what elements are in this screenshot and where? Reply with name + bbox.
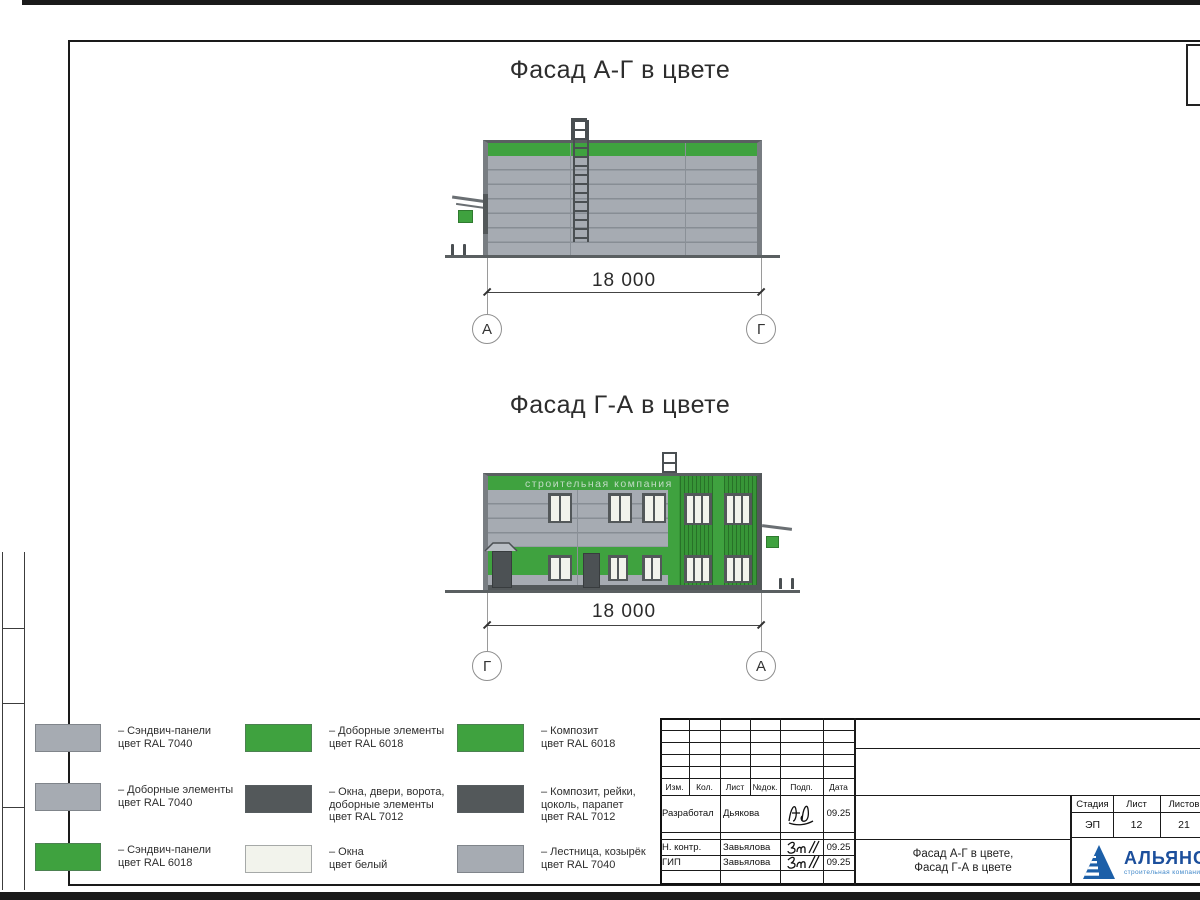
stamp-name: Завьялова: [723, 840, 779, 855]
legend-swatch: [35, 724, 101, 752]
axis-label: А: [482, 321, 492, 338]
legend-item: – Композит цвет RAL 6018: [457, 724, 615, 752]
composite-strip: [713, 476, 724, 585]
legend-label: – Доборные элементы цвет RAL 6018: [329, 724, 444, 750]
legend-item: – Доборные элементы цвет RAL 7040: [35, 783, 233, 811]
stamp-line: [1070, 812, 1200, 813]
legend-item: – Окна цвет белый: [245, 845, 387, 873]
drawing-sheet: Фасад А-Г в цвете 18 000 А Г Фасад Г-А в…: [0, 0, 1200, 900]
sheet-label: Лист: [1113, 797, 1160, 812]
company-tagline: строительная компания: [1124, 869, 1200, 876]
stamp-line: [720, 718, 721, 885]
sandwich-panel-lines: [488, 156, 757, 255]
top-edge-bar: [22, 0, 1200, 5]
stamp-date: 09.25: [823, 855, 854, 870]
stamp-line: [780, 718, 781, 885]
roof-access-ladder: [573, 120, 589, 242]
bottom-edge-bar: [0, 892, 1200, 900]
stamp-line: [854, 718, 856, 885]
axis-bubble-left: А: [472, 314, 502, 344]
frame-left: [68, 40, 70, 886]
stamp-col-data: Дата: [823, 779, 854, 794]
company-logo-pyramid-icon: [1082, 843, 1116, 881]
bollard: [463, 244, 466, 255]
stamp-date: 09.25: [823, 840, 854, 855]
stage-value: ЭП: [1072, 816, 1113, 834]
margin-divider: [2, 703, 25, 704]
margin-divider: [2, 807, 25, 808]
green-utility-box: [766, 536, 779, 548]
window: [724, 555, 752, 583]
side-canopy: [762, 524, 792, 531]
margin-line-inner: [24, 552, 25, 890]
legend-item: – Композит, рейки, цоколь, парапет цвет …: [457, 785, 636, 824]
window: [684, 555, 712, 583]
extension-line: [761, 258, 762, 314]
sheets-label: Листов: [1160, 797, 1200, 812]
stamp-col-doc: №док.: [750, 779, 780, 794]
legend-item: – Сэндвич-панели цвет RAL 7040: [35, 724, 211, 752]
margin-divider: [2, 628, 25, 629]
legend-label: – Лестница, козырёк цвет RAL 7040: [541, 845, 646, 871]
axis-bubble-right: Г: [746, 314, 776, 344]
stamp-name: Завьялова: [723, 855, 779, 870]
green-utility-box: [458, 210, 473, 223]
legend-swatch: [457, 724, 524, 752]
sandwich-panel-lines: [488, 490, 668, 547]
wall-bracket: [483, 194, 488, 234]
signature-scribble: [784, 799, 820, 827]
legend-label: – Доборные элементы цвет RAL 7040: [118, 783, 233, 809]
legend-swatch: [35, 783, 101, 811]
frame-top: [68, 40, 1200, 42]
legend-label: – Сэндвич-панели цвет RAL 7040: [118, 724, 211, 750]
facade-a-g-drawing: 18 000 А Г: [440, 108, 830, 358]
company-watermark: строительная компания: [525, 478, 673, 490]
sheets-total: 21: [1160, 816, 1200, 834]
window: [642, 493, 666, 523]
stamp-line: [660, 766, 855, 767]
legend-swatch: [245, 845, 312, 873]
legend-swatch: [245, 785, 312, 813]
facade1-title: Фасад А-Г в цвете: [420, 56, 820, 85]
legend-label: – Окна цвет белый: [329, 845, 387, 871]
stamp-date: 09.25: [823, 806, 854, 821]
corner-stamp-box: [1186, 44, 1200, 106]
stamp-col-list: Лист: [720, 779, 750, 794]
window: [684, 493, 712, 525]
legend-item: – Доборные элементы цвет RAL 6018: [245, 724, 444, 752]
axis-label: Г: [483, 658, 491, 675]
legend-swatch: [457, 845, 524, 873]
margin-line-outer: [2, 552, 3, 890]
bollard: [451, 244, 454, 255]
stamp-line: [660, 832, 855, 833]
green-parapet-band: [488, 143, 757, 156]
ground-line: [445, 255, 780, 258]
window: [642, 555, 662, 581]
axis-label: Г: [757, 321, 765, 338]
extension-line: [487, 258, 488, 314]
stamp-name: Дьякова: [723, 806, 779, 821]
stamp-line: [660, 870, 855, 871]
legend-item: – Окна, двери, ворота, доборные элементы…: [245, 785, 444, 824]
legend-item: – Сэндвич-панели цвет RAL 6018: [35, 843, 211, 871]
facade2-wall: [483, 473, 762, 592]
stamp-role: Разработал: [662, 806, 720, 821]
bollard: [791, 578, 794, 589]
stamp-role: ГИП: [662, 855, 720, 870]
stamp-line: [855, 748, 1200, 749]
signature-scribble: [785, 855, 821, 870]
stamp-line: [660, 730, 855, 731]
signature-scribble: [785, 840, 821, 855]
bollard: [779, 578, 782, 589]
axis-label: А: [756, 658, 766, 675]
legend-swatch: [245, 724, 312, 752]
facade2-dimension: 18 000: [544, 601, 704, 623]
axis-bubble-right: А: [746, 651, 776, 681]
stamp-col-podp: Подп.: [780, 779, 823, 794]
plinth-strip: [488, 575, 668, 585]
stage-label: Стадия: [1072, 797, 1113, 812]
panel-joint: [577, 490, 578, 585]
legend-label: – Композит, рейки, цоколь, парапет цвет …: [541, 785, 636, 824]
sheet-number: 12: [1113, 816, 1160, 834]
dimension-line: [487, 292, 761, 293]
stamp-line: [660, 795, 1200, 796]
roof-hatch-box: [662, 452, 677, 473]
panel-joint: [685, 143, 686, 255]
hatch-rail: [664, 462, 675, 464]
facade2-title: Фасад Г-А в цвете: [420, 391, 820, 420]
company-name: АЛЬЯНС: [1124, 848, 1200, 869]
stamp-role: Н. контр.: [662, 840, 720, 855]
panel-joint: [570, 143, 571, 255]
window: [608, 555, 628, 581]
entrance-door: [492, 551, 512, 588]
canopy-strut: [456, 203, 486, 209]
stamp-line: [660, 754, 855, 755]
facade1-dimension: 18 000: [544, 270, 704, 292]
window: [548, 555, 572, 581]
facade1-wall: [483, 140, 762, 258]
legend-swatch: [457, 785, 524, 813]
stamp-line: [1070, 837, 1200, 838]
stamp-line: [660, 742, 855, 743]
ground-line: [445, 590, 800, 593]
legend-label: – Сэндвич-панели цвет RAL 6018: [118, 843, 211, 869]
legend-swatch: [35, 843, 101, 871]
legend-label: – Композит цвет RAL 6018: [541, 724, 615, 750]
stamp-col-izm: Изм.: [660, 779, 689, 794]
stamp-line: [660, 839, 1070, 840]
window: [608, 493, 632, 523]
legend-item: – Лестница, козырёк цвет RAL 7040: [457, 845, 646, 873]
document-title: Фасад А-Г в цвете, Фасад Г-А в цвете: [858, 847, 1068, 875]
entrance-door: [583, 553, 600, 588]
dimension-line: [487, 625, 761, 626]
window: [724, 493, 752, 525]
composite-strip: [668, 476, 679, 585]
axis-bubble-left: Г: [472, 651, 502, 681]
legend-label: – Окна, двери, ворота, доборные элементы…: [329, 785, 444, 824]
stamp-col-kol: Кол.: [689, 779, 720, 794]
window: [548, 493, 572, 523]
